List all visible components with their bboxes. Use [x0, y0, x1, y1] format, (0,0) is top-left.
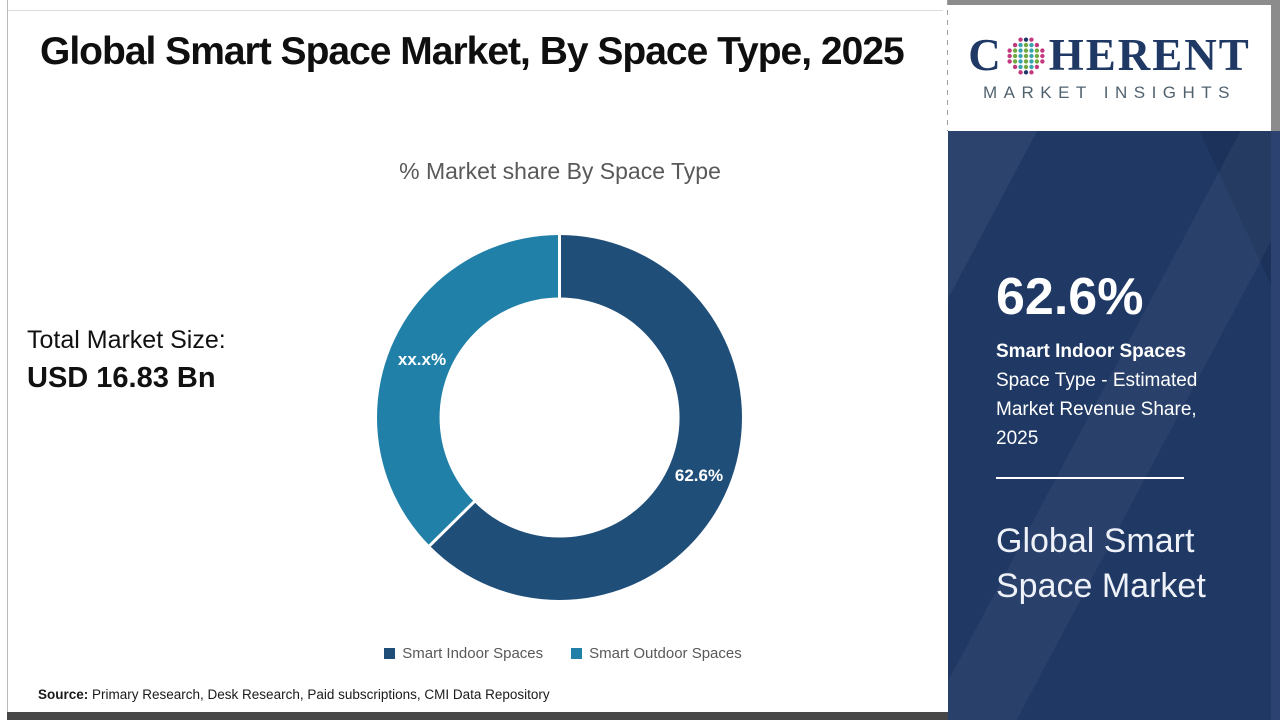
brand-logo: C HERENT MARKET INSIGHTS: [948, 5, 1271, 131]
page-title: Global Smart Space Market, By Space Type…: [40, 30, 940, 74]
legend-item-outdoor: Smart Outdoor Spaces: [571, 645, 742, 662]
brand-wordmark: C HERENT: [968, 33, 1251, 78]
donut-hole: [439, 297, 680, 538]
sidebar-content: 62.6% Smart Indoor Spaces Space Type - E…: [948, 131, 1271, 609]
total-market-size-value: USD 16.83 Bn: [27, 362, 226, 395]
source-text: Primary Research, Desk Research, Paid su…: [88, 687, 549, 702]
total-market-size-label: Total Market Size:: [27, 326, 226, 355]
sidebar: 62.6% Smart Indoor Spaces Space Type - E…: [948, 131, 1271, 720]
right-edge-top: [1271, 0, 1280, 131]
legend-label-outdoor: Smart Outdoor Spaces: [589, 645, 742, 662]
stat-value: 62.6%: [996, 271, 1271, 323]
legend-label-indoor: Smart Indoor Spaces: [402, 645, 543, 662]
legend-swatch-outdoor: [571, 648, 582, 659]
source-label: Source:: [38, 687, 88, 702]
chart-legend: Smart Indoor Spaces Smart Outdoor Spaces: [340, 645, 786, 662]
dotted-globe-icon: [1006, 36, 1046, 76]
slice-label-outdoor: xx.x%: [398, 350, 446, 370]
source-line: Source: Primary Research, Desk Research,…: [38, 687, 550, 702]
slide-top-border: [8, 10, 943, 11]
total-market-size: Total Market Size: USD 16.83 Bn: [27, 326, 226, 395]
chart-title: % Market share By Space Type: [340, 158, 780, 185]
brand-subtitle: MARKET INSIGHTS: [983, 83, 1236, 103]
legend-swatch-indoor: [384, 648, 395, 659]
slide: Global Smart Space Market, By Space Type…: [0, 0, 1280, 720]
stat-title: Smart Indoor Spaces: [996, 337, 1236, 366]
slide-bottom-border: [7, 712, 948, 720]
sidebar-report-title: Global Smart Space Market: [996, 519, 1221, 609]
slide-left-border: [7, 0, 8, 713]
right-edge-bottom: [1271, 131, 1280, 720]
stat-description: Space Type - Estimated Market Revenue Sh…: [996, 366, 1228, 453]
legend-item-indoor: Smart Indoor Spaces: [384, 645, 543, 662]
brand-letters-herent: HERENT: [1049, 33, 1251, 78]
brand-letter-c: C: [968, 33, 1003, 78]
slice-label-indoor: 62.6%: [675, 466, 723, 486]
donut-chart: 62.6% xx.x%: [377, 235, 742, 600]
stat-underline: [996, 477, 1184, 479]
